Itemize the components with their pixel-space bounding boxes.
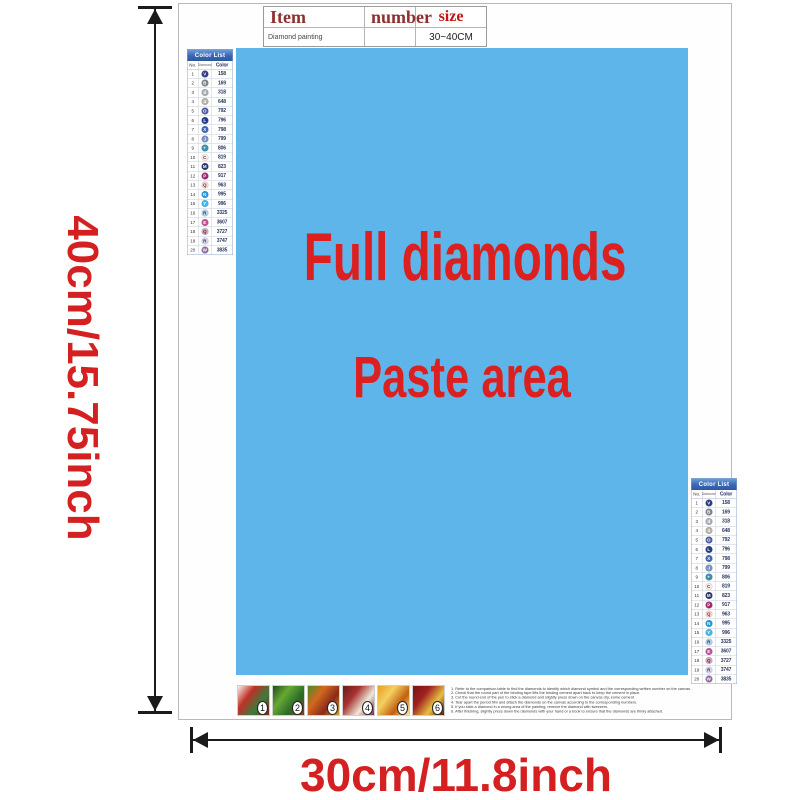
diamond-symbol-icon: 4 <box>199 97 212 106</box>
diamond-symbol-icon: N <box>199 190 212 199</box>
color-row-number: 11 <box>692 591 703 600</box>
color-list-left: Color List No. Diamond Color 1V1582B1693… <box>187 49 233 255</box>
color-list-row: 18Q3727 <box>692 656 737 665</box>
item-table-cell-item: Diamond painting <box>264 28 365 46</box>
color-list-row: 2B169 <box>692 508 737 517</box>
color-list-row: 10C819 <box>692 582 737 591</box>
paste-area-title-line1: Full diamonds <box>304 218 620 296</box>
dmc-color-code: 917 <box>716 601 737 610</box>
color-row-number: 16 <box>188 209 199 218</box>
color-list-right: Color List No. Diamond Color 1V1582B1693… <box>691 478 737 684</box>
color-row-number: 5 <box>692 536 703 545</box>
diamond-symbol-icon: B <box>199 79 212 88</box>
diamond-symbol-icon: L <box>703 545 716 554</box>
color-row-number: 7 <box>692 554 703 563</box>
dmc-color-code: 963 <box>212 181 233 190</box>
color-list-row: 15Y996 <box>692 628 737 637</box>
dmc-color-code: 792 <box>212 107 233 116</box>
color-row-number: 5 <box>188 107 199 116</box>
diamond-symbol-icon: Q <box>703 610 716 619</box>
dmc-color-code: 3747 <box>212 236 233 245</box>
color-row-number: 1 <box>692 499 703 508</box>
thumbnail-number-badge: 2 <box>292 701 303 715</box>
diamond-symbol-icon: C <box>703 582 716 591</box>
diamond-symbol-icon: 4 <box>703 526 716 535</box>
diamond-symbol-icon: d <box>199 88 212 97</box>
dmc-color-code: 648 <box>212 97 233 106</box>
color-list-row: 18Q3727 <box>188 227 233 236</box>
diamond-symbol-icon: Q <box>199 181 212 190</box>
dmc-color-code: 799 <box>212 134 233 143</box>
diamond-symbol-icon: W <box>703 675 716 684</box>
color-list-row: 14N995 <box>692 619 737 628</box>
dmc-color-code: 917 <box>212 172 233 181</box>
color-list-row: 9+806 <box>692 573 737 582</box>
color-list-row: 1V158 <box>692 499 737 508</box>
sample-image-thumbnail: 5 <box>377 685 410 716</box>
dmc-color-code: 798 <box>716 554 737 563</box>
dmc-color-code: 996 <box>716 628 737 637</box>
paste-area: Full diamonds Paste area <box>236 48 688 675</box>
diamond-symbol-icon: E <box>703 647 716 656</box>
color-list-row: 17E3607 <box>188 218 233 227</box>
color-list-row: 44648 <box>188 97 233 106</box>
color-row-number: 18 <box>188 227 199 236</box>
dmc-color-code: 318 <box>212 88 233 97</box>
color-list-row: 44648 <box>692 526 737 535</box>
color-list-row: 17E3607 <box>692 647 737 656</box>
dmc-color-code: 169 <box>716 508 737 517</box>
dmc-color-code: 3835 <box>212 246 233 255</box>
diamond-symbol-icon: R <box>199 236 212 245</box>
color-row-number: 10 <box>188 153 199 162</box>
diamond-symbol-icon: Q <box>199 227 212 236</box>
color-list-row: 7X798 <box>692 554 737 563</box>
color-row-number: 3 <box>188 88 199 97</box>
diamond-symbol-icon: R <box>703 638 716 647</box>
color-row-number: 15 <box>188 199 199 208</box>
height-dimension-label: 40cm/15.75inch <box>59 213 107 543</box>
sample-image-thumbnail: 1 <box>237 685 270 716</box>
color-row-number: 7 <box>188 125 199 134</box>
diamond-symbol-icon: O <box>199 107 212 116</box>
color-list-row: 10C819 <box>188 153 233 162</box>
dmc-color-code: 3325 <box>212 209 233 218</box>
color-row-number: 12 <box>692 601 703 610</box>
color-list-row: 7X798 <box>188 125 233 134</box>
item-table-header-number: number <box>365 7 416 28</box>
color-row-number: 16 <box>692 638 703 647</box>
dmc-color-code: 3727 <box>716 656 737 665</box>
diamond-symbol-icon: X <box>199 125 212 134</box>
color-row-number: 20 <box>692 675 703 684</box>
color-list-row: 15Y996 <box>188 199 233 208</box>
dmc-color-code: 3727 <box>212 227 233 236</box>
color-list-body: 1V1582B1693d318446485O7926L7967X7988J799… <box>188 70 233 255</box>
color-list-row: 1V158 <box>188 70 233 79</box>
color-row-number: 11 <box>188 162 199 171</box>
color-list-row: 6L796 <box>692 545 737 554</box>
color-list-row: 19R3747 <box>188 236 233 245</box>
color-list-row: 3d318 <box>188 88 233 97</box>
color-list-row: 12P917 <box>188 172 233 181</box>
color-list-row: 12P917 <box>692 601 737 610</box>
sample-image-thumbnail: 4 <box>342 685 375 716</box>
diamond-symbol-icon: Y <box>199 199 212 208</box>
diamond-symbol-icon: N <box>703 619 716 628</box>
dmc-color-code: 796 <box>212 116 233 125</box>
color-list-row: 19R3747 <box>692 665 737 674</box>
dmc-color-code: 796 <box>716 545 737 554</box>
diamond-symbol-icon: O <box>703 536 716 545</box>
color-row-number: 3 <box>692 517 703 526</box>
color-list-title: Color List <box>188 50 233 62</box>
column-diamond: Diamond <box>703 490 716 498</box>
diamond-symbol-icon: Y <box>703 628 716 637</box>
dmc-color-code: 318 <box>716 517 737 526</box>
dmc-color-code: 3607 <box>716 647 737 656</box>
color-row-number: 9 <box>188 144 199 153</box>
arrow-down-icon <box>147 696 163 711</box>
color-row-number: 19 <box>692 665 703 674</box>
color-list-title: Color List <box>692 479 737 491</box>
dmc-color-code: 3607 <box>212 218 233 227</box>
color-list-row: 20W3835 <box>692 675 737 684</box>
color-list-row: 11M823 <box>692 591 737 600</box>
dmc-color-code: 792 <box>716 536 737 545</box>
dmc-color-code: 996 <box>212 199 233 208</box>
color-row-number: 6 <box>692 545 703 554</box>
sample-image-thumbnail: 3 <box>307 685 340 716</box>
dmc-color-code: 158 <box>212 70 233 79</box>
diamond-symbol-icon: P <box>199 172 212 181</box>
color-list-row: 13Q963 <box>692 610 737 619</box>
diamond-symbol-icon: Q <box>703 656 716 665</box>
color-list-row: 8J799 <box>188 134 233 143</box>
diamond-symbol-icon: R <box>199 209 212 218</box>
diamond-symbol-icon: L <box>199 116 212 125</box>
color-list-body: 1V1582B1693d318446485O7926L7967X7988J799… <box>692 499 737 684</box>
sample-image-thumbnail: 2 <box>272 685 305 716</box>
dmc-color-code: 799 <box>716 563 737 572</box>
color-row-number: 14 <box>692 619 703 628</box>
thumbnail-number-badge: 6 <box>432 701 443 715</box>
color-row-number: 2 <box>188 79 199 88</box>
thumbnail-number-badge: 4 <box>362 701 373 715</box>
dmc-color-code: 819 <box>716 582 737 591</box>
color-row-number: 17 <box>188 218 199 227</box>
dmc-color-code: 963 <box>716 610 737 619</box>
item-table-cell-number <box>365 28 416 46</box>
width-dimension-label: 30cm/11.8inch <box>190 748 722 800</box>
color-row-number: 13 <box>692 610 703 619</box>
item-table-header-size: size <box>416 7 486 28</box>
color-list-column-headers: No. Diamond Color <box>692 490 737 499</box>
color-list-row: 9+806 <box>188 144 233 153</box>
dmc-color-code: 806 <box>212 144 233 153</box>
diamond-symbol-icon: M <box>199 162 212 171</box>
sample-thumbnails-row: 123456 <box>237 685 445 716</box>
color-row-number: 8 <box>692 563 703 572</box>
diamond-symbol-icon: d <box>703 517 716 526</box>
color-list-row: 5O792 <box>692 536 737 545</box>
dmc-color-code: 806 <box>716 573 737 582</box>
color-list-row: 16R3325 <box>692 638 737 647</box>
column-color: Color <box>212 61 233 69</box>
color-row-number: 20 <box>188 246 199 255</box>
diamond-symbol-icon: C <box>199 153 212 162</box>
thumbnail-number-badge: 5 <box>397 701 408 715</box>
dmc-color-code: 3325 <box>716 638 737 647</box>
diamond-symbol-icon: P <box>703 601 716 610</box>
dimension-line-vertical <box>154 9 157 711</box>
color-list-row: 11M823 <box>188 162 233 171</box>
color-row-number: 14 <box>188 190 199 199</box>
diamond-symbol-icon: + <box>703 573 716 582</box>
color-row-number: 4 <box>692 526 703 535</box>
diamond-symbol-icon: J <box>703 563 716 572</box>
dmc-color-code: 798 <box>212 125 233 134</box>
diamond-symbol-icon: + <box>199 144 212 153</box>
diamond-symbol-icon: M <box>703 591 716 600</box>
color-list-row: 8J799 <box>692 563 737 572</box>
color-row-number: 9 <box>692 573 703 582</box>
diamond-symbol-icon: B <box>703 508 716 517</box>
dmc-color-code: 158 <box>716 499 737 508</box>
item-table-header-item: Item <box>264 7 365 28</box>
color-row-number: 13 <box>188 181 199 190</box>
dmc-color-code: 648 <box>716 526 737 535</box>
color-list-row: 13Q963 <box>188 181 233 190</box>
dmc-color-code: 823 <box>716 591 737 600</box>
diamond-symbol-icon: V <box>703 499 716 508</box>
column-diamond: Diamond <box>199 61 212 69</box>
diamond-symbol-icon: R <box>703 665 716 674</box>
diamond-symbol-icon: E <box>199 218 212 227</box>
item-table-cell-size: 30~40CM <box>416 28 486 46</box>
dmc-color-code: 169 <box>212 79 233 88</box>
paste-area-title-line2: Paste area <box>293 344 632 411</box>
diamond-symbol-icon: W <box>199 246 212 255</box>
color-row-number: 1 <box>188 70 199 79</box>
diamond-symbol-icon: J <box>199 134 212 143</box>
dmc-color-code: 3835 <box>716 675 737 684</box>
color-row-number: 19 <box>188 236 199 245</box>
color-row-number: 12 <box>188 172 199 181</box>
color-list-row: 20W3835 <box>188 246 233 255</box>
sample-image-thumbnail: 6 <box>412 685 445 716</box>
color-list-row: 14N995 <box>188 190 233 199</box>
item-info-table: Item number size Diamond painting 30~40C… <box>263 6 487 47</box>
instruction-line: 6. After finishing, slightly press down … <box>451 710 691 715</box>
color-row-number: 15 <box>692 628 703 637</box>
color-list-row: 16R3325 <box>188 209 233 218</box>
canvas-sheet: Item number size Diamond painting 30~40C… <box>178 3 732 720</box>
diamond-symbol-icon: V <box>199 70 212 79</box>
diamond-symbol-icon: X <box>703 554 716 563</box>
color-list-row: 3d318 <box>692 517 737 526</box>
color-list-row: 2B169 <box>188 79 233 88</box>
dmc-color-code: 819 <box>212 153 233 162</box>
color-list-row: 5O792 <box>188 107 233 116</box>
dmc-color-code: 823 <box>212 162 233 171</box>
dimension-line-horizontal <box>193 739 719 742</box>
color-row-number: 6 <box>188 116 199 125</box>
color-list-row: 6L796 <box>188 116 233 125</box>
color-row-number: 17 <box>692 647 703 656</box>
color-list-column-headers: No. Diamond Color <box>188 61 233 70</box>
diamond-painting-size-chart: 40cm/15.75inch Item number size Diamond … <box>0 0 800 800</box>
height-dimension-arrow <box>138 6 172 714</box>
thumbnail-number-badge: 1 <box>257 701 268 715</box>
dmc-color-code: 995 <box>212 190 233 199</box>
color-row-number: 18 <box>692 656 703 665</box>
dmc-color-code: 3747 <box>716 665 737 674</box>
arrow-cap-bottom <box>138 711 172 714</box>
instructions-text: 1. Refer to the comparison table to find… <box>451 687 691 714</box>
thumbnail-number-badge: 3 <box>327 701 338 715</box>
color-row-number: 8 <box>188 134 199 143</box>
instructions-block: 1. Refer to the comparison table to find… <box>451 687 691 717</box>
color-row-number: 4 <box>188 97 199 106</box>
color-row-number: 10 <box>692 582 703 591</box>
dmc-color-code: 995 <box>716 619 737 628</box>
color-row-number: 2 <box>692 508 703 517</box>
column-color: Color <box>716 490 737 498</box>
arrow-right-icon <box>704 732 719 748</box>
